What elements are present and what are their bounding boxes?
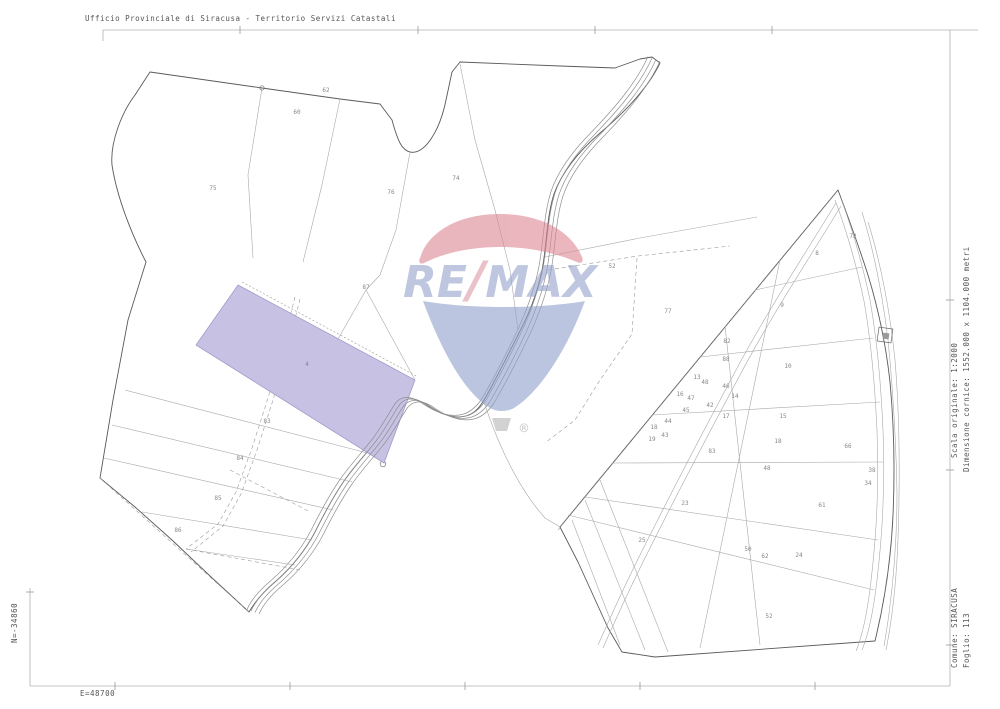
parcel-number: 66 [844, 443, 852, 450]
parcel-number: 19 [648, 436, 656, 443]
parcel-number: 23 [681, 500, 689, 507]
remax-logo-text: RE/MAX [403, 251, 599, 309]
parcel-number: 44 [664, 418, 672, 425]
parcel-number: 13 [693, 374, 701, 381]
parcel-number: 88 [722, 356, 730, 363]
parcel-number: 52 [765, 613, 773, 620]
north-coordinate-label: N=-34860 [10, 603, 19, 643]
parcel-number: 16 [676, 391, 684, 398]
parcel-number: 74 [452, 175, 460, 182]
balloon-basket-icon [492, 418, 511, 431]
parcel-number: 62 [761, 553, 769, 560]
parcel-number: 75 [209, 185, 217, 192]
cadastral-map: 7560627674874838485865277728910828813484… [0, 0, 1000, 709]
parcel-number: 82 [723, 338, 731, 345]
parcel-number: 83 [708, 448, 716, 455]
east-coordinate-label: E=48700 [80, 689, 115, 698]
parcel-number: 61 [818, 502, 826, 509]
parcel-number: 34 [864, 480, 872, 487]
parcel-number: 77 [664, 308, 672, 315]
parcel-number: 86 [174, 527, 182, 534]
parcel-number: 46 [722, 383, 730, 390]
parcel-number: 8 [815, 250, 819, 257]
parcel-number: 10 [784, 363, 792, 370]
left-parcel-group [100, 57, 660, 612]
parcel-number: 18 [650, 424, 658, 431]
parcel-number: 43 [661, 432, 669, 439]
remax-watermark: RE/MAX ® [403, 214, 599, 437]
parcel-number: 62 [322, 87, 330, 94]
parcel-number: 76 [387, 189, 395, 196]
office-title: Ufficio Provinciale di Siracusa - Territ… [85, 14, 396, 23]
parcel-number: 87 [362, 284, 370, 291]
parcel-number: 42 [706, 402, 714, 409]
parcel-number: 24 [795, 552, 803, 559]
cadastral-map-viewer: 7560627674874838485865277728910828813484… [0, 0, 1000, 709]
scale-label: Scala originale: 1:2000 [950, 343, 959, 458]
parcel-number: 18 [774, 438, 782, 445]
right-parcel-group [558, 190, 899, 657]
parcel-number: 17 [722, 413, 730, 420]
comune-label: Comune: SIRACUSA [950, 588, 959, 668]
parcel-number: 83 [263, 418, 271, 425]
parcel-number: 85 [214, 495, 222, 502]
parcel-number: 50 [744, 546, 752, 553]
parcel-number: 52 [608, 263, 616, 270]
frame-size-label: Dimensione cornice: 1552.000 x 1104.000 … [962, 246, 971, 472]
parcel-number: 45 [682, 407, 690, 414]
building-icon [877, 327, 893, 343]
parcel-number: 25 [638, 537, 646, 544]
parcel-number: 15 [779, 413, 787, 420]
parcel-number: 72 [849, 233, 857, 240]
parcel-number: 48 [763, 465, 771, 472]
registered-mark: ® [520, 421, 529, 437]
balloon-bottom-icon [423, 301, 585, 411]
foglio-label: Foglio: 113 [962, 613, 971, 668]
parcel-number: 9 [780, 302, 784, 309]
parcel-number: 48 [701, 379, 709, 386]
parcel-number: 60 [293, 109, 301, 116]
parcel-number: 47 [687, 395, 695, 402]
parcel-number: 38 [868, 467, 876, 474]
parcel-number: 84 [236, 455, 244, 462]
parcel-number: 4 [305, 361, 309, 368]
parcel-number: 14 [731, 393, 739, 400]
